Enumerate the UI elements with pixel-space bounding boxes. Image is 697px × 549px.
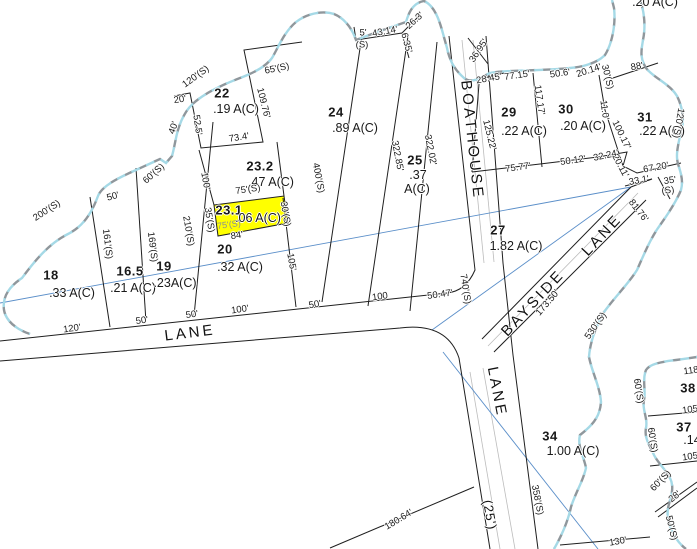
- shoreline-dashed: [4, 0, 697, 549]
- tie-lines: [0, 187, 631, 549]
- parcel-lines: [0, 15, 697, 549]
- highlighted-parcel[interactable]: [214, 196, 288, 236]
- tax-parcel-map: 18.33 A(C)16.5.21 A(C)19.23A(C)20.32 A(C…: [0, 0, 697, 549]
- road-inner-lines: [462, 40, 638, 549]
- map-vector-layer: [0, 0, 697, 549]
